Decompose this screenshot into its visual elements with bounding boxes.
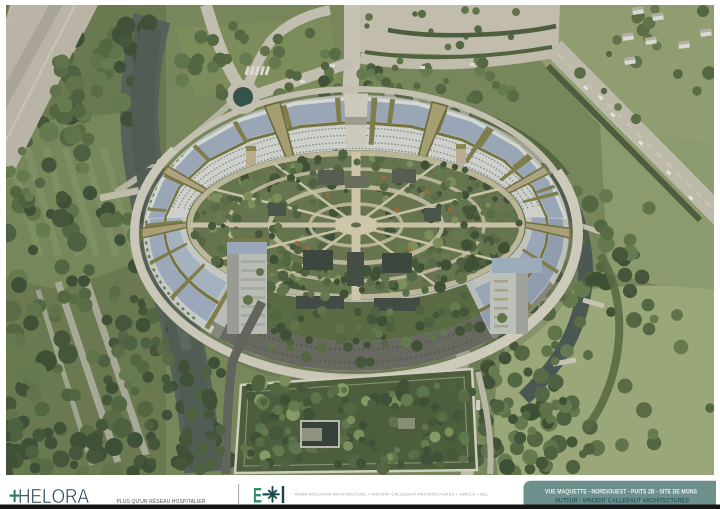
svg-text:AGWA INCLUSIVE ARCHITECTURE +: AGWA INCLUSIVE ARCHITECTURE + VINCENT CA… (295, 492, 490, 497)
svg-text:HELORA: HELORA (18, 485, 89, 508)
svg-text:AUTEUR : VINCENT CALLEBAUT ARC: AUTEUR : VINCENT CALLEBAUT ARCHITECTURES (555, 497, 689, 504)
svg-text:VUE MAQUETTE - NORD/OUEST - PU: VUE MAQUETTE - NORD/OUEST - PUITS 2B - S… (545, 488, 697, 495)
svg-text:PLUS QU'UN RÉSEAU HOSPITALIER: PLUS QU'UN RÉSEAU HOSPITALIER (117, 498, 206, 505)
svg-text:E: E (253, 485, 262, 508)
